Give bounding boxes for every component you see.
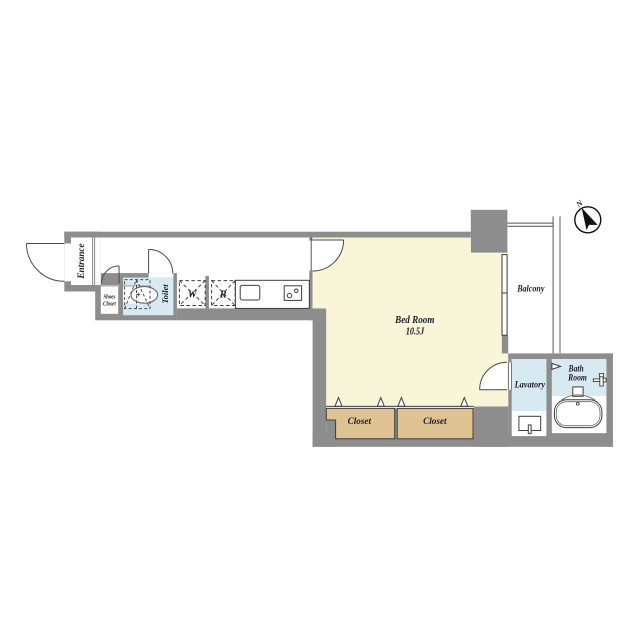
svg-text:Lavatory: Lavatory — [514, 381, 546, 391]
svg-text:Closet: Closet — [348, 417, 372, 427]
svg-text:W: W — [188, 289, 197, 300]
svg-text:R: R — [219, 289, 227, 300]
svg-text:Room: Room — [567, 374, 587, 384]
svg-text:10.5J: 10.5J — [406, 327, 425, 338]
svg-text:Toilet: Toilet — [161, 284, 170, 304]
svg-text:Closet: Closet — [103, 300, 116, 307]
svg-text:Balcony: Balcony — [516, 285, 545, 295]
svg-text:Closet: Closet — [423, 417, 447, 427]
svg-text:Bed Room: Bed Room — [394, 315, 434, 326]
svg-text:Entrance: Entrance — [76, 243, 86, 279]
